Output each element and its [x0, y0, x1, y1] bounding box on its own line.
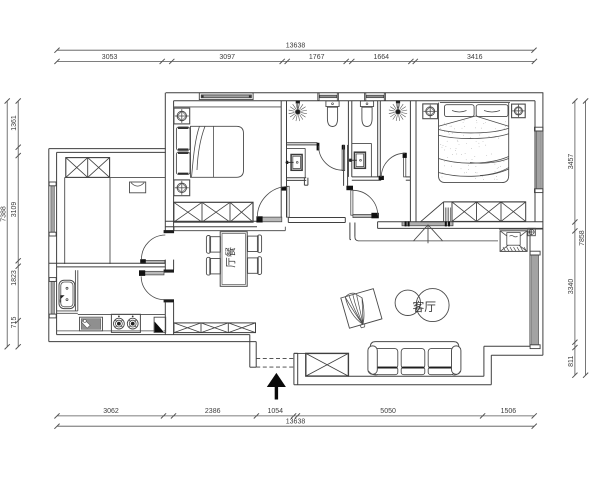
svg-text:7388: 7388 — [0, 206, 7, 222]
svg-text:厅餐: 厅餐 — [224, 246, 237, 267]
svg-text:1506: 1506 — [501, 408, 517, 415]
svg-text:715: 715 — [11, 317, 18, 329]
svg-text:客厅: 客厅 — [412, 300, 436, 314]
svg-text:13638: 13638 — [286, 418, 306, 425]
svg-text:3109: 3109 — [11, 202, 18, 218]
svg-text:3457: 3457 — [568, 154, 575, 170]
svg-text:3097: 3097 — [219, 54, 235, 61]
svg-text:1054: 1054 — [268, 408, 284, 415]
svg-text:3062: 3062 — [103, 408, 119, 415]
svg-text:2386: 2386 — [205, 408, 221, 415]
svg-text:13638: 13638 — [286, 43, 306, 50]
svg-text:3416: 3416 — [467, 54, 483, 61]
svg-text:1664: 1664 — [374, 54, 390, 61]
svg-text:5050: 5050 — [380, 408, 396, 415]
svg-text:1361: 1361 — [11, 115, 18, 131]
svg-text:3053: 3053 — [102, 54, 118, 61]
svg-text:7858: 7858 — [579, 230, 586, 246]
svg-text:1823: 1823 — [11, 270, 18, 286]
svg-text:811: 811 — [568, 356, 575, 367]
svg-text:3340: 3340 — [568, 279, 575, 295]
svg-text:1767: 1767 — [309, 54, 325, 61]
